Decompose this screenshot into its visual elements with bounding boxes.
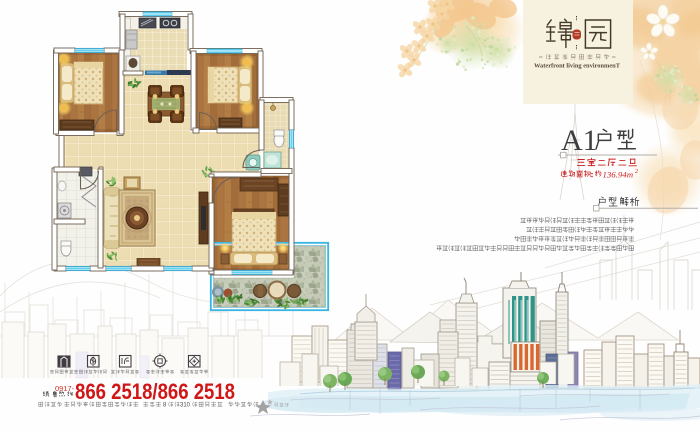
svg-text:2: 2 <box>635 169 638 175</box>
svg-text:866 2518/866 2518: 866 2518/866 2518 <box>75 379 235 404</box>
svg-text:Waterfront living environmenT: Waterfront living environmenT <box>534 63 621 70</box>
svg-text:A1: A1 <box>561 124 598 157</box>
svg-text:136.94m: 136.94m <box>603 170 634 180</box>
svg-text:0917-: 0917- <box>55 384 75 393</box>
svg-text:310: 310 <box>180 403 191 409</box>
